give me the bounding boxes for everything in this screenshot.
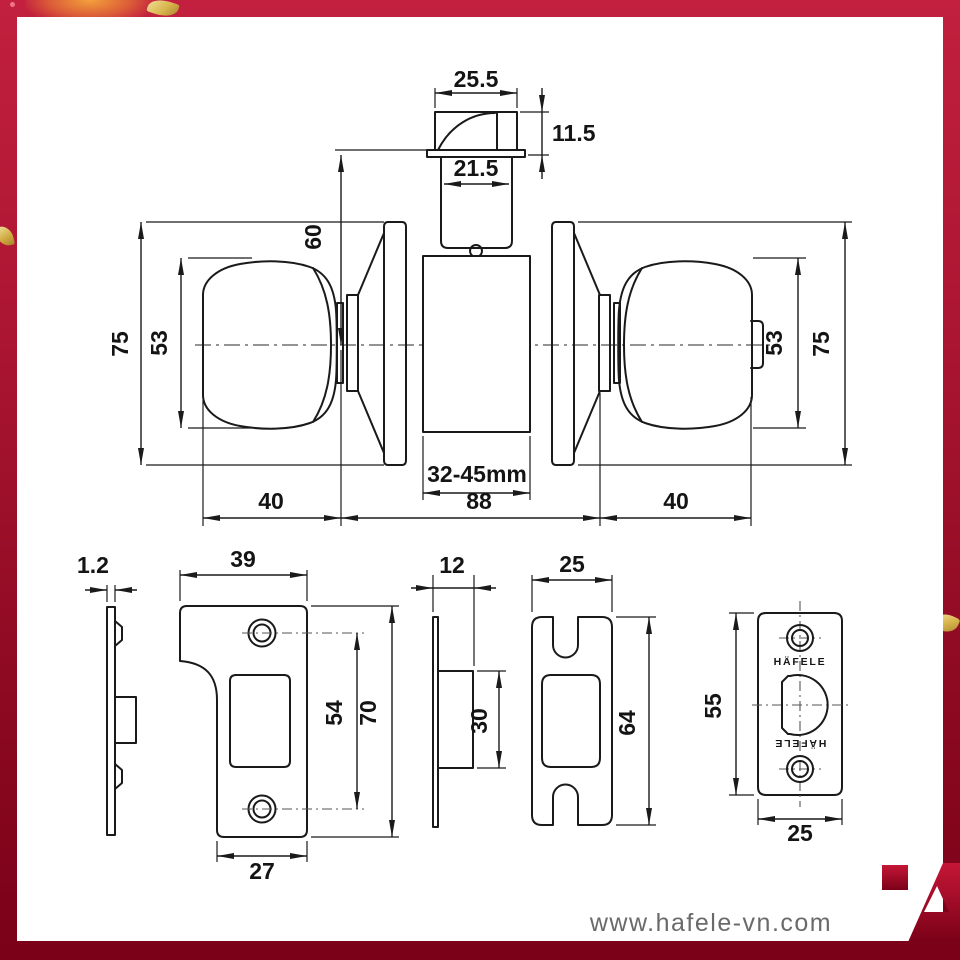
brand-engraving-top: HÄFELE bbox=[774, 655, 827, 668]
dim-body-length: 88 bbox=[466, 488, 492, 514]
right-rose-plate bbox=[552, 222, 600, 465]
dim-knob-dia-right: 53 bbox=[761, 330, 787, 356]
bolt-faceplate-view: HÄFELE HÄFELE 55 25 bbox=[700, 601, 848, 846]
dim-faceplate-width: 25 bbox=[787, 820, 813, 846]
dim-latch-front-height: 64 bbox=[614, 710, 640, 736]
dim-strike-height: 70 bbox=[355, 700, 381, 726]
page: { "colors": { "border_red_top": "#c2203e… bbox=[0, 0, 960, 960]
dim-spindle-width: 21.5 bbox=[454, 155, 499, 181]
dim-strike-thickness: 1.2 bbox=[77, 552, 109, 578]
hafele-logo bbox=[876, 860, 960, 945]
strike-plate-side-view: 1.2 bbox=[77, 552, 137, 835]
knobset-assembly: 25.5 11.5 21.5 60 75 53 53 75 32-45mm 40… bbox=[107, 66, 852, 526]
brand-engraving-bottom: HÄFELE bbox=[774, 737, 827, 750]
confetti-dot bbox=[10, 2, 15, 7]
dim-knob-dia-left: 53 bbox=[146, 330, 172, 356]
latch-window bbox=[230, 675, 290, 767]
dim-bolt-width: 25.5 bbox=[454, 66, 499, 92]
dim-bolt-height: 11.5 bbox=[552, 120, 596, 146]
dim-knob-proj-left: 40 bbox=[258, 488, 284, 514]
dim-strike-bottom-width: 27 bbox=[249, 858, 275, 884]
left-rose-plate bbox=[358, 222, 406, 465]
latch-front-view: 25 64 bbox=[532, 551, 656, 825]
logo-dot bbox=[882, 865, 908, 890]
dim-strike-width: 39 bbox=[230, 546, 256, 572]
dim-latch-depth: 12 bbox=[439, 552, 465, 578]
lock-body-cylinder bbox=[423, 256, 530, 432]
logo-a-mark bbox=[908, 863, 960, 942]
dim-latch-housing-height: 30 bbox=[466, 708, 492, 734]
dim-strike-hole-spacing: 54 bbox=[321, 700, 347, 726]
dim-center-height: 60 bbox=[300, 224, 326, 250]
website-url: www.hafele-vn.com bbox=[589, 909, 832, 937]
dim-latch-front-width: 25 bbox=[559, 551, 585, 577]
dim-knob-proj-right: 40 bbox=[663, 488, 689, 514]
dim-door-thickness: 32-45mm bbox=[427, 461, 527, 487]
dim-rose-dia-left: 75 bbox=[107, 331, 133, 357]
technical-drawing: 25.5 11.5 21.5 60 75 53 53 75 32-45mm 40… bbox=[17, 17, 943, 941]
strike-plate-front-view: 39 54 70 27 bbox=[180, 546, 399, 884]
latch-front-window bbox=[542, 675, 600, 767]
gold-confetti-left bbox=[0, 225, 15, 248]
dim-rose-dia-right: 75 bbox=[808, 331, 834, 357]
dim-faceplate-height: 55 bbox=[700, 693, 726, 719]
latch-side-view: 12 30 bbox=[411, 552, 506, 827]
drawing-panel: 25.5 11.5 21.5 60 75 53 53 75 32-45mm 40… bbox=[17, 17, 943, 941]
